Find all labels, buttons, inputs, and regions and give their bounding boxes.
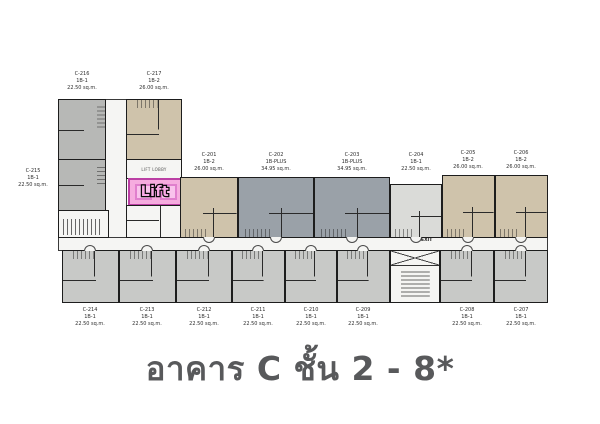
lift: Lift xyxy=(128,178,182,206)
unit-C-205 xyxy=(442,175,495,238)
unit-label-C-203: C-203 1B-PLUS 34.95 sq.m. xyxy=(337,152,367,173)
unit-id: C-214 xyxy=(75,307,105,314)
unit-id: C-213 xyxy=(132,307,162,314)
unit-C-201 xyxy=(180,177,238,238)
exit-label: EXIT xyxy=(421,238,432,243)
lift-lobby-label: LIFT LOBBY xyxy=(141,167,166,172)
unit-label-C-217: C-217 1B-2 26.00 sq.m. xyxy=(139,71,169,92)
unit-type: 1B-1 xyxy=(189,314,219,321)
door-arc xyxy=(305,245,317,251)
unit-id: C-212 xyxy=(189,307,219,314)
unit-type: 1B-1 xyxy=(348,314,378,321)
unit-id: C-203 xyxy=(337,152,367,159)
unit-C-212 xyxy=(176,250,232,303)
unit-C-204 xyxy=(390,184,442,238)
unit-area: 22.50 sq.m. xyxy=(132,321,162,328)
unit-type: 1B-1 xyxy=(67,78,97,85)
unit-area: 22.50 sq.m. xyxy=(401,166,431,173)
unit-C-211 xyxy=(232,250,285,303)
main-corridor xyxy=(58,237,548,251)
lift-lobby: LIFT LOBBY xyxy=(126,159,182,179)
unit-id: C-215 xyxy=(18,168,48,175)
unit-label-C-210: C-210 1B-1 22.50 sq.m. xyxy=(296,307,326,328)
unit-id: C-206 xyxy=(506,150,536,157)
unit-C-213 xyxy=(119,250,176,303)
unit-label-C-208: C-208 1B-1 22.50 sq.m. xyxy=(452,307,482,328)
door-arc xyxy=(84,245,96,251)
unit-C-208 xyxy=(440,250,494,303)
unit-C-210 xyxy=(285,250,337,303)
unit-area: 22.50 sq.m. xyxy=(189,321,219,328)
door-arc xyxy=(461,245,473,251)
unit-label-C-204: C-204 1B-1 22.50 sq.m. xyxy=(401,152,431,173)
unit-type: 1B-1 xyxy=(132,314,162,321)
page-title: อาคาร C ชั้น 2 - 8* xyxy=(0,342,600,395)
unit-C-209 xyxy=(337,250,390,303)
unit-type: 1B-1 xyxy=(296,314,326,321)
unit-type: 1B-2 xyxy=(194,159,224,166)
unit-type: 1B-1 xyxy=(243,314,273,321)
unit-area: 26.00 sq.m. xyxy=(139,85,169,92)
unit-id: C-217 xyxy=(139,71,169,78)
unit-id: C-216 xyxy=(67,71,97,78)
unit-area: 22.50 sq.m. xyxy=(296,321,326,328)
unit-id: C-207 xyxy=(506,307,536,314)
unit-label-C-212: C-212 1B-1 22.50 sq.m. xyxy=(189,307,219,328)
wing-staircase xyxy=(58,210,109,238)
unit-area: 22.50 sq.m. xyxy=(348,321,378,328)
stair-landing xyxy=(391,251,439,266)
service-rooms xyxy=(126,205,182,238)
unit-label-C-215: C-215 1B-1 22.50 sq.m. xyxy=(18,168,48,189)
unit-type: 1B-2 xyxy=(139,78,169,85)
unit-id: C-211 xyxy=(243,307,273,314)
door-arc xyxy=(357,245,369,251)
unit-area: 22.50 sq.m. xyxy=(67,85,97,92)
unit-type: 1B-PLUS xyxy=(337,159,367,166)
unit-area: 26.00 sq.m. xyxy=(194,166,224,173)
unit-type: 1B-2 xyxy=(453,157,483,164)
unit-type: 1B-1 xyxy=(401,159,431,166)
main-staircase xyxy=(390,250,440,303)
unit-id: C-208 xyxy=(452,307,482,314)
door-arc xyxy=(141,245,153,251)
unit-area: 22.50 sq.m. xyxy=(75,321,105,328)
floor-plan: EXIT LIFT LOBBY Lift C-216 xyxy=(0,0,600,424)
unit-area: 34.95 sq.m. xyxy=(261,166,291,173)
door-arc xyxy=(515,245,527,251)
unit-id: C-201 xyxy=(194,152,224,159)
unit-area: 22.50 sq.m. xyxy=(452,321,482,328)
unit-type: 1B-1 xyxy=(506,314,536,321)
unit-label-C-214: C-214 1B-1 22.50 sq.m. xyxy=(75,307,105,328)
unit-type: 1B-1 xyxy=(75,314,105,321)
unit-label-C-207: C-207 1B-1 22.50 sq.m. xyxy=(506,307,536,328)
unit-type: 1B-2 xyxy=(506,157,536,164)
unit-label-C-205: C-205 1B-2 26.00 sq.m. xyxy=(453,150,483,171)
unit-label-C-211: C-211 1B-1 22.50 sq.m. xyxy=(243,307,273,328)
unit-area: 26.00 sq.m. xyxy=(453,164,483,171)
unit-id: C-209 xyxy=(348,307,378,314)
unit-label-C-201: C-201 1B-2 26.00 sq.m. xyxy=(194,152,224,173)
unit-id: C-204 xyxy=(401,152,431,159)
door-arc xyxy=(198,245,210,251)
unit-C-203 xyxy=(314,177,390,238)
unit-C-207 xyxy=(494,250,548,303)
door-arc xyxy=(252,245,264,251)
unit-label-C-213: C-213 1B-1 22.50 sq.m. xyxy=(132,307,162,328)
unit-label-C-206: C-206 1B-2 26.00 sq.m. xyxy=(506,150,536,171)
unit-area: 22.50 sq.m. xyxy=(18,182,48,189)
unit-type: 1B-1 xyxy=(18,175,48,182)
lift-label: Lift xyxy=(141,184,170,200)
unit-area: 34.95 sq.m. xyxy=(337,166,367,173)
unit-area: 22.50 sq.m. xyxy=(243,321,273,328)
unit-label-C-209: C-209 1B-1 22.50 sq.m. xyxy=(348,307,378,328)
unit-C-202 xyxy=(238,177,314,238)
unit-id: C-210 xyxy=(296,307,326,314)
unit-C-214 xyxy=(62,250,119,303)
unit-label-C-202: C-202 1B-PLUS 34.95 sq.m. xyxy=(261,152,291,173)
unit-id: C-202 xyxy=(261,152,291,159)
unit-type: 1B-PLUS xyxy=(261,159,291,166)
unit-label-C-216: C-216 1B-1 22.50 sq.m. xyxy=(67,71,97,92)
unit-C-217 xyxy=(126,99,182,160)
unit-C-216 xyxy=(58,99,106,160)
unit-id: C-205 xyxy=(453,150,483,157)
unit-C-215 xyxy=(58,159,106,211)
unit-area: 26.00 sq.m. xyxy=(506,164,536,171)
unit-C-206 xyxy=(495,175,548,238)
unit-area: 22.50 sq.m. xyxy=(506,321,536,328)
unit-type: 1B-1 xyxy=(452,314,482,321)
